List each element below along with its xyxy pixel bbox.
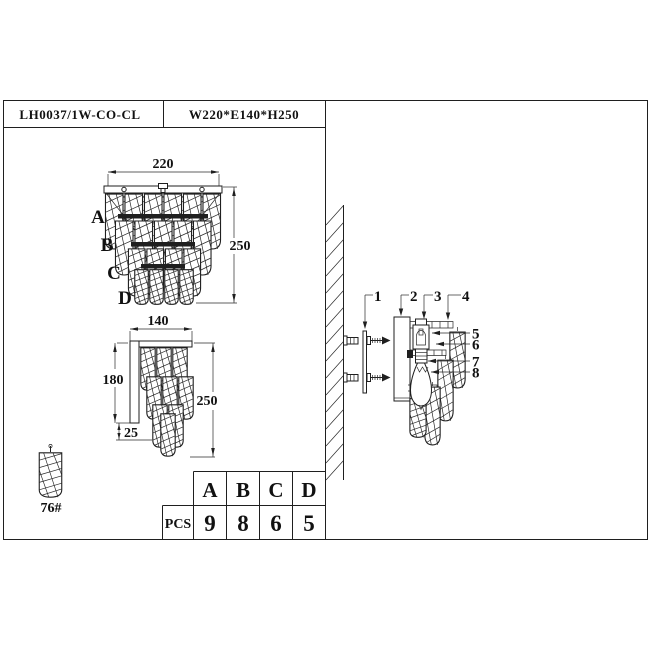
callout-3: 3 <box>434 289 442 305</box>
front-view: 220 <box>91 157 250 309</box>
back-plate <box>394 317 410 401</box>
crystal-icon <box>165 270 179 305</box>
wall-anchor <box>344 336 359 345</box>
callout-8: 8 <box>472 366 480 382</box>
side-view: 140 180 <box>103 314 218 457</box>
crystal-part-detail: 76# <box>39 444 62 516</box>
table-col-a: A <box>202 478 218 502</box>
tier-label-c: C <box>107 263 121 284</box>
terminal-block <box>407 350 413 358</box>
side-depth-dimension: 180 <box>103 343 132 423</box>
crystal-icon <box>135 270 149 305</box>
size-spec: W220*E140*H250 <box>189 107 299 122</box>
mounting-screw <box>367 337 391 345</box>
model-number: LH0037/1W-CO-CL <box>19 107 140 122</box>
side-height-value: 250 <box>197 394 218 409</box>
technical-drawing-canvas: LH0037/1W-CO-CL W220*E140*H250 220 <box>0 0 650 650</box>
front-width-value: 220 <box>153 157 174 172</box>
support-bar-c <box>131 242 195 247</box>
crystal-part-label: 76# <box>41 501 62 516</box>
title-block: LH0037/1W-CO-CL W220*E140*H250 <box>19 107 299 122</box>
table-row-header: PCS <box>165 517 192 532</box>
drawing-sheet: LH0037/1W-CO-CL W220*E140*H250 220 <box>0 0 650 650</box>
installation-diagram: 1 2 3 4 5 6 7 8 <box>326 205 480 480</box>
parts-table: A B C D PCS 9 8 6 5 <box>163 472 326 540</box>
tier-label-b: B <box>101 235 114 256</box>
wall-section <box>326 205 344 480</box>
candle-bulb <box>411 363 432 410</box>
wall-hatch <box>326 206 344 481</box>
sheet-frame <box>4 101 648 540</box>
callout-2: 2 <box>410 289 418 305</box>
crystal-icon <box>180 270 194 305</box>
side-inset-value: 25 <box>124 426 138 441</box>
table-qty-b: 8 <box>237 511 249 536</box>
screw-hole-icon <box>200 187 204 191</box>
callout-4: 4 <box>462 289 470 305</box>
table-qty-c: 6 <box>270 511 282 536</box>
table-col-d: D <box>301 478 316 502</box>
table-col-b: B <box>236 478 250 502</box>
table-qty-a: 9 <box>204 511 216 536</box>
mounting-strip <box>363 331 367 393</box>
screw-hole-icon <box>122 187 126 191</box>
side-depth-value: 180 <box>103 373 124 388</box>
side-width-value: 140 <box>148 314 169 329</box>
callout-6: 6 <box>472 338 480 354</box>
tier-label-a: A <box>91 207 105 228</box>
table-col-c: C <box>268 478 283 502</box>
table-qty-d: 5 <box>303 511 315 536</box>
support-bar-b <box>118 214 208 219</box>
side-width-dimension: 140 <box>130 314 192 341</box>
top-mounting-bar <box>104 184 222 194</box>
wall-anchor <box>344 373 359 382</box>
crystal-icon <box>161 414 175 456</box>
side-back-plate <box>130 341 139 423</box>
keyhole-icon <box>159 184 168 189</box>
tier-label-d: D <box>118 288 132 309</box>
crystal-icon <box>150 270 164 305</box>
callout-1: 1 <box>374 289 382 305</box>
front-height-value: 250 <box>230 239 251 254</box>
mounting-screw <box>367 374 391 382</box>
support-bar-d <box>141 264 185 269</box>
crystal-icon <box>39 453 62 497</box>
side-height-dimension: 250 <box>190 343 218 457</box>
side-inset-dimension: 25 <box>116 423 152 441</box>
